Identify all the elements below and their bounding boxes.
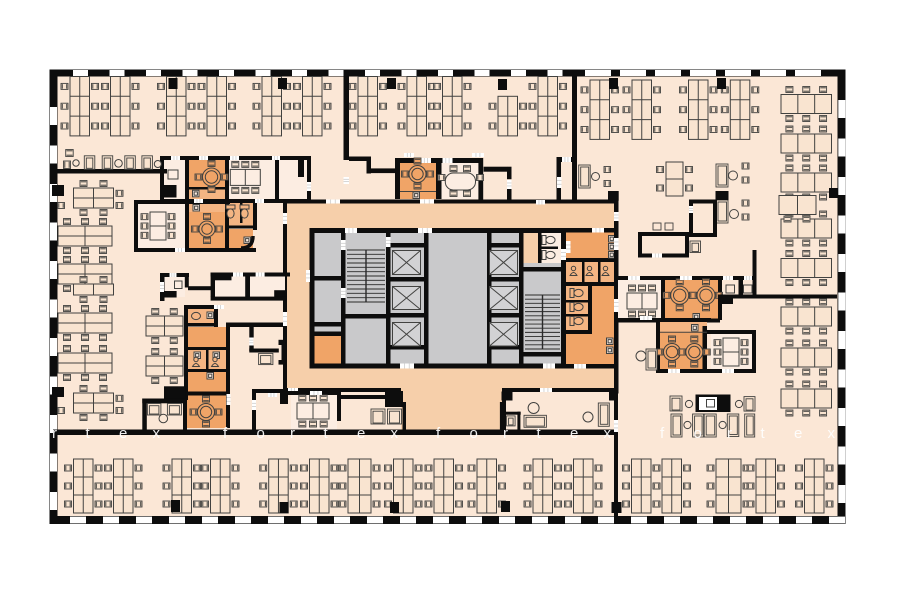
svg-text:r: r: [503, 425, 508, 442]
svg-text:x: x: [828, 425, 836, 442]
svg-text:x: x: [391, 425, 399, 442]
svg-text:e: e: [357, 425, 365, 442]
svg-text:e: e: [794, 425, 802, 442]
svg-text:e: e: [119, 425, 127, 442]
svg-text:r: r: [727, 425, 732, 442]
svg-text:o: o: [470, 425, 478, 442]
svg-text:r: r: [52, 425, 57, 442]
svg-text:e: e: [570, 425, 578, 442]
svg-text:x: x: [153, 425, 161, 442]
svg-text:o: o: [257, 425, 265, 442]
svg-text:o: o: [694, 425, 702, 442]
svg-text:x: x: [604, 425, 612, 442]
svg-text:r: r: [290, 425, 295, 442]
